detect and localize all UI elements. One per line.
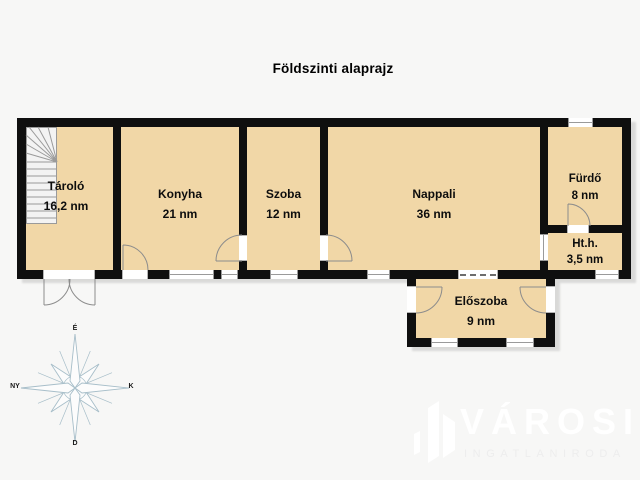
- door-opening-entrance-double: [43, 270, 95, 279]
- room-name: Nappali: [328, 184, 540, 204]
- window: [169, 270, 214, 279]
- room-area: 3,5 nm: [548, 252, 622, 268]
- room-name: Konyha: [121, 184, 239, 204]
- room-name: Ht.h.: [548, 236, 622, 252]
- room-label-szoba: Szoba 12 nm: [247, 184, 320, 224]
- compass-south-label: D: [69, 440, 81, 447]
- room-area: 16,2 nm: [16, 196, 116, 216]
- compass-north-label: É: [69, 325, 81, 332]
- room-area: 21 nm: [121, 204, 239, 224]
- window: [506, 338, 534, 347]
- opening-nappali-eloszoba: [458, 270, 498, 279]
- compass-west-label: NY: [6, 383, 24, 390]
- window: [221, 270, 238, 279]
- room-area: 12 nm: [247, 204, 320, 224]
- room-label-eloszoba: Előszoba 9 nm: [416, 291, 546, 331]
- room-label-furdo: Fürdő 8 nm: [548, 171, 622, 205]
- room-label-konyha: Konyha 21 nm: [121, 184, 239, 224]
- room-area: 8 nm: [548, 188, 622, 205]
- page-title: Földszinti alaprajz: [203, 61, 463, 76]
- door-opening-furdo-hth: [567, 225, 589, 233]
- window: [367, 270, 390, 279]
- door-opening-konyha-exterior: [122, 270, 148, 279]
- door-opening-konyha-szoba: [239, 235, 247, 261]
- room-area: 9 nm: [416, 311, 546, 331]
- compass-east-label: K: [124, 383, 138, 390]
- room-label-hth: Ht.h. 3,5 nm: [548, 236, 622, 268]
- room-name: Szoba: [247, 184, 320, 204]
- watermark-subtitle: INGATLANIRODA: [464, 448, 640, 460]
- room-name: Tároló: [16, 176, 116, 196]
- room-area: 36 nm: [328, 204, 540, 224]
- compass-rose-icon: [21, 334, 129, 442]
- watermark-building-icon: [410, 398, 460, 466]
- window: [270, 270, 298, 279]
- watermark-brand: VÁROSI: [460, 401, 640, 443]
- room-name: Fürdő: [548, 171, 622, 188]
- door-arc-entrance-left: [44, 279, 70, 305]
- window: [431, 338, 458, 347]
- room-label-tarolo: Tároló 16,2 nm: [16, 176, 116, 216]
- door-arc-entrance-right: [69, 279, 95, 305]
- room-name: Előszoba: [416, 291, 546, 311]
- room-label-nappali: Nappali 36 nm: [328, 184, 540, 224]
- window: [568, 118, 593, 127]
- floorplan-page: Földszinti alaprajz: [0, 0, 640, 480]
- opening-nappali-hth: [540, 234, 548, 261]
- door-opening-eloszoba-left: [407, 286, 416, 313]
- door-opening-szoba-nappali: [320, 235, 328, 261]
- window: [595, 270, 619, 279]
- door-opening-eloszoba-right: [546, 286, 555, 313]
